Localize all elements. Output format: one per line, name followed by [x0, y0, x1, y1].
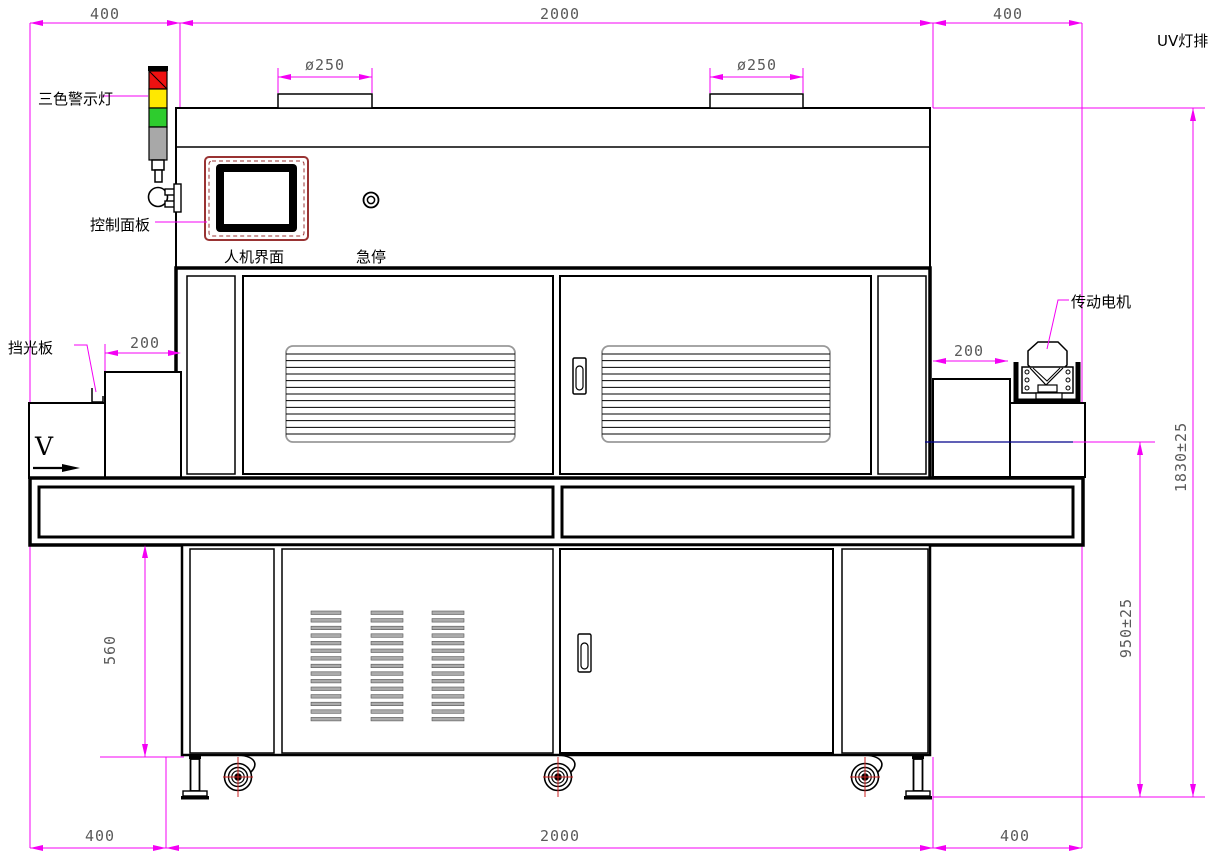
- louver-vent-right: [602, 346, 830, 442]
- cabinet-vent-slats-1: [311, 611, 341, 721]
- label-drive-motor: 传动电机: [1071, 291, 1131, 312]
- cabinet-door-handle: [578, 634, 591, 672]
- cabinet-panel-left: [190, 549, 274, 753]
- louver-vent-left: [286, 346, 515, 442]
- dim-outfeed-200: 200: [954, 342, 984, 360]
- upper-door-handle: [573, 358, 586, 394]
- cabinet-door: [560, 549, 833, 753]
- drive-motor-assembly: [1016, 342, 1078, 401]
- tower-light-pole: [149, 127, 167, 160]
- conveyor-table: [30, 478, 1083, 545]
- exhaust-chimney-left: [278, 94, 372, 108]
- caster-wheel: [850, 755, 882, 797]
- casters: [223, 755, 882, 797]
- dim-top-right-400: 400: [993, 5, 1023, 23]
- infeed-tunnel: [29, 372, 181, 478]
- caster-wheel: [543, 755, 575, 797]
- label-uv-lamp-row: UV灯排: [1157, 30, 1208, 51]
- dim-infeed-200: 200: [130, 334, 160, 352]
- cad-drawing-uv-machine: 400 2000 400 ø250 ø250 200 200 560 950±2…: [0, 0, 1211, 861]
- door-section: [176, 268, 930, 481]
- dim-top-2000: 2000: [540, 5, 580, 23]
- dim-chimney-right: ø250: [737, 56, 777, 74]
- tower-light-green: [149, 108, 167, 127]
- dim-chimney-left: ø250: [305, 56, 345, 74]
- cabinet-panel-right: [842, 549, 928, 753]
- upper-side-panel-left: [187, 276, 235, 474]
- label-estop: 急停: [356, 246, 386, 267]
- exhaust-chimney-right: [710, 94, 803, 108]
- upper-side-panel-right: [878, 276, 926, 474]
- label-direction-v: V: [35, 432, 53, 461]
- label-control-panel: 控制面板: [90, 214, 150, 235]
- label-light-shield: 挡光板: [8, 337, 53, 358]
- leveling-foot: [904, 755, 932, 800]
- hmi-touch-panel: [205, 157, 308, 240]
- dim-bottom-right-400: 400: [1000, 827, 1030, 845]
- leveling-foot: [181, 755, 209, 800]
- tower-light-yellow: [149, 89, 167, 108]
- dim-bottom-left-400: 400: [85, 827, 115, 845]
- dim-bottom-2000: 2000: [540, 827, 580, 845]
- drawing-geometry: [0, 0, 1211, 861]
- dim-top-left-400: 400: [90, 5, 120, 23]
- label-hmi: 人机界面: [224, 246, 284, 267]
- label-tower-light: 三色警示灯: [38, 88, 113, 109]
- tower-light-mount: [174, 184, 181, 212]
- light-shield-plate: [92, 388, 103, 402]
- hmi-screen: [224, 172, 289, 224]
- dim-cabinet-560: 560: [101, 635, 119, 665]
- cabinet-vent-slats-3: [432, 611, 464, 721]
- dim-overall-1830: 1830±25: [1172, 422, 1190, 492]
- cabinet-vent-slats-2: [371, 611, 403, 721]
- lower-cabinet: [182, 545, 930, 755]
- dim-belt-950: 950±25: [1117, 598, 1135, 658]
- caster-wheel: [223, 755, 255, 797]
